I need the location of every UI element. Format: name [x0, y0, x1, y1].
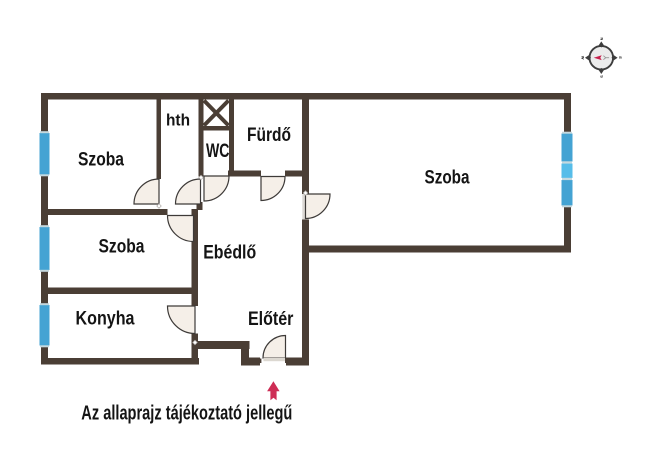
- svg-text:Szoba: Szoba: [78, 150, 124, 171]
- svg-text:N: N: [599, 38, 603, 41]
- svg-text:E: E: [618, 56, 622, 59]
- svg-text:W: W: [581, 56, 585, 60]
- svg-text:Szoba: Szoba: [425, 168, 470, 189]
- svg-text:hth: hth: [166, 111, 190, 130]
- svg-text:Konyha: Konyha: [76, 309, 135, 330]
- svg-text:WC: WC: [206, 141, 230, 162]
- svg-text:S: S: [599, 75, 603, 78]
- svg-text:Előtér: Előtér: [248, 309, 294, 330]
- svg-text:Szoba: Szoba: [99, 237, 145, 258]
- svg-text:Az allaprajz tájékoztató jelle: Az allaprajz tájékoztató jellegű: [81, 403, 292, 425]
- svg-text:Ebédlő: Ebédlő: [203, 243, 256, 264]
- svg-text:Fürdő: Fürdő: [247, 125, 291, 146]
